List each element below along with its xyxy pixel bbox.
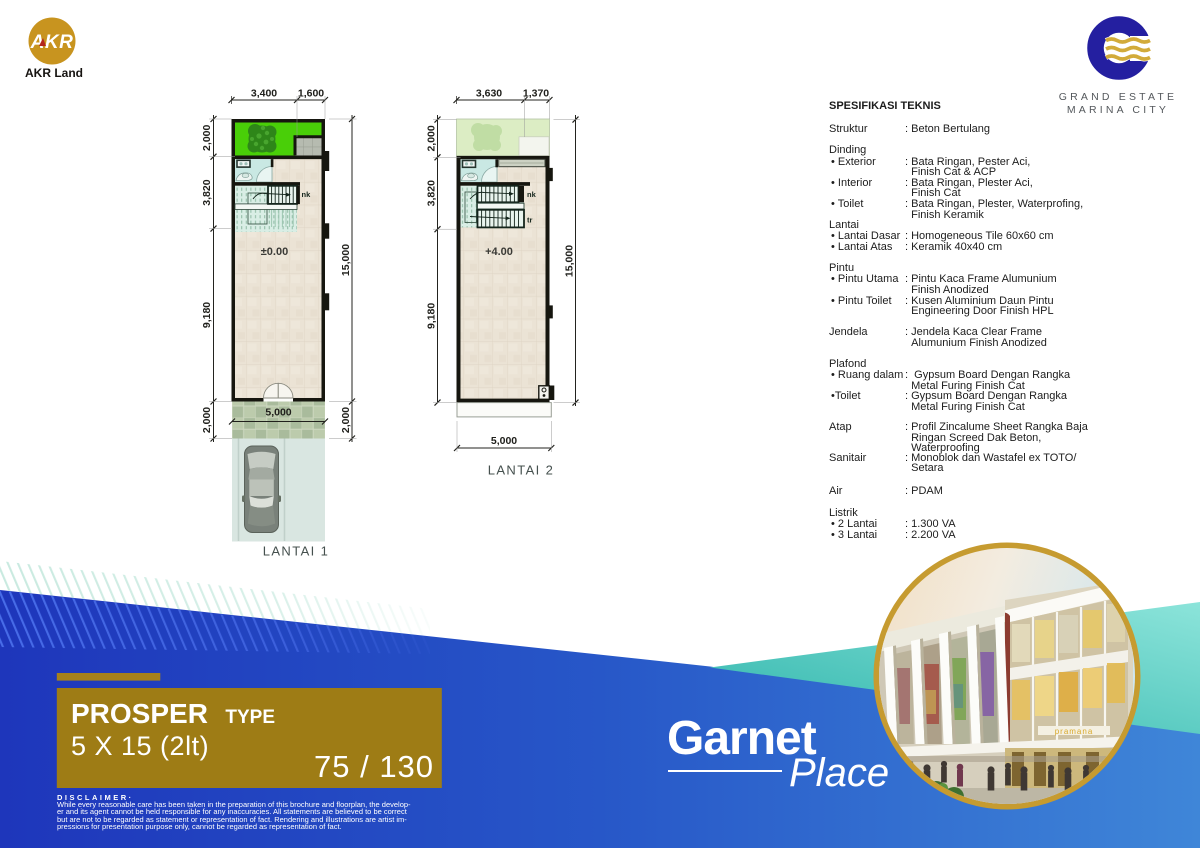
svg-text:1,370: 1,370 [523,88,549,100]
svg-text:+4.00: +4.00 [485,246,513,258]
svg-text:15,000: 15,000 [564,245,576,277]
svg-text:15,000: 15,000 [340,244,352,276]
svg-text:tr: tr [527,216,532,225]
svg-text:3,820: 3,820 [426,180,438,206]
svg-text:3,400: 3,400 [251,88,277,100]
svg-text:2,000: 2,000 [426,125,438,151]
svg-text:±0.00: ±0.00 [261,246,288,258]
svg-text:9,180: 9,180 [201,302,213,328]
svg-text:2,000: 2,000 [201,407,213,433]
svg-text:2,000: 2,000 [201,125,213,151]
svg-text:MARINA CITY: MARINA CITY [1067,104,1169,116]
svg-text:3,630: 3,630 [476,88,502,100]
svg-text:GRAND ESTATE: GRAND ESTATE [1059,91,1178,103]
svg-text:5,000: 5,000 [491,435,517,447]
svg-text:9,180: 9,180 [426,303,438,329]
svg-text:1,600: 1,600 [298,88,324,100]
svg-text:LANTAI 1: LANTAI 1 [263,544,330,559]
svg-text:nk: nk [527,190,537,199]
svg-text:2,000: 2,000 [340,407,352,433]
svg-text:3,820: 3,820 [201,179,213,205]
svg-text:LANTAI 2: LANTAI 2 [488,463,555,478]
svg-text:5,000: 5,000 [265,407,291,419]
svg-text:nk: nk [302,190,312,199]
svg-text:pramana: pramana [1055,727,1094,736]
svg-text:AKR: AKR [30,32,74,53]
svg-text:AKR Land: AKR Land [25,66,83,80]
